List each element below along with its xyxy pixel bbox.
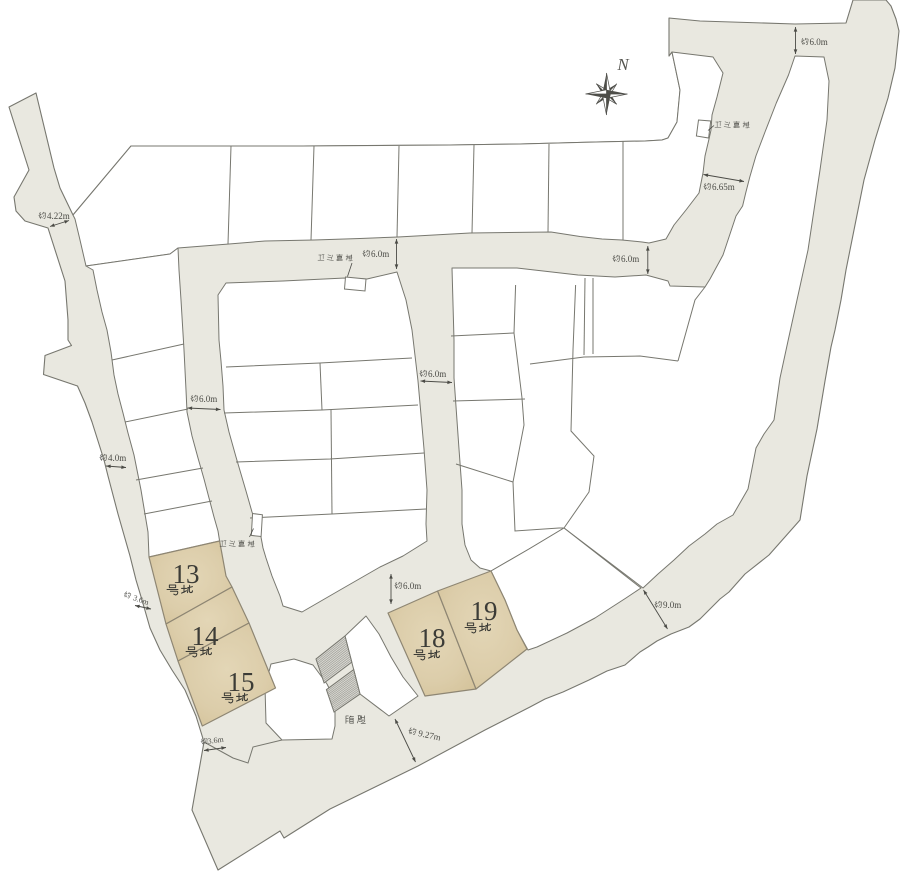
svg-text:13: 13 bbox=[173, 559, 200, 589]
svg-text:6.0m: 6.0m bbox=[371, 249, 389, 259]
svg-text:6.0m: 6.0m bbox=[428, 369, 446, 379]
svg-text:14: 14 bbox=[192, 621, 220, 651]
svg-text:6.65m: 6.65m bbox=[712, 182, 735, 192]
svg-text:9.0m: 9.0m bbox=[663, 600, 681, 610]
svg-text:6.0m: 6.0m bbox=[810, 37, 828, 47]
svg-text:6.0m: 6.0m bbox=[199, 394, 217, 404]
svg-text:4.0m: 4.0m bbox=[108, 453, 126, 463]
svg-text:6.0m: 6.0m bbox=[621, 254, 639, 264]
svg-text:4.22m: 4.22m bbox=[47, 211, 70, 221]
svg-text:N: N bbox=[616, 55, 630, 74]
svg-text:18: 18 bbox=[419, 623, 446, 653]
svg-text:6.0m: 6.0m bbox=[403, 581, 421, 591]
svg-text:15: 15 bbox=[228, 667, 255, 697]
svg-text:19: 19 bbox=[471, 596, 498, 626]
